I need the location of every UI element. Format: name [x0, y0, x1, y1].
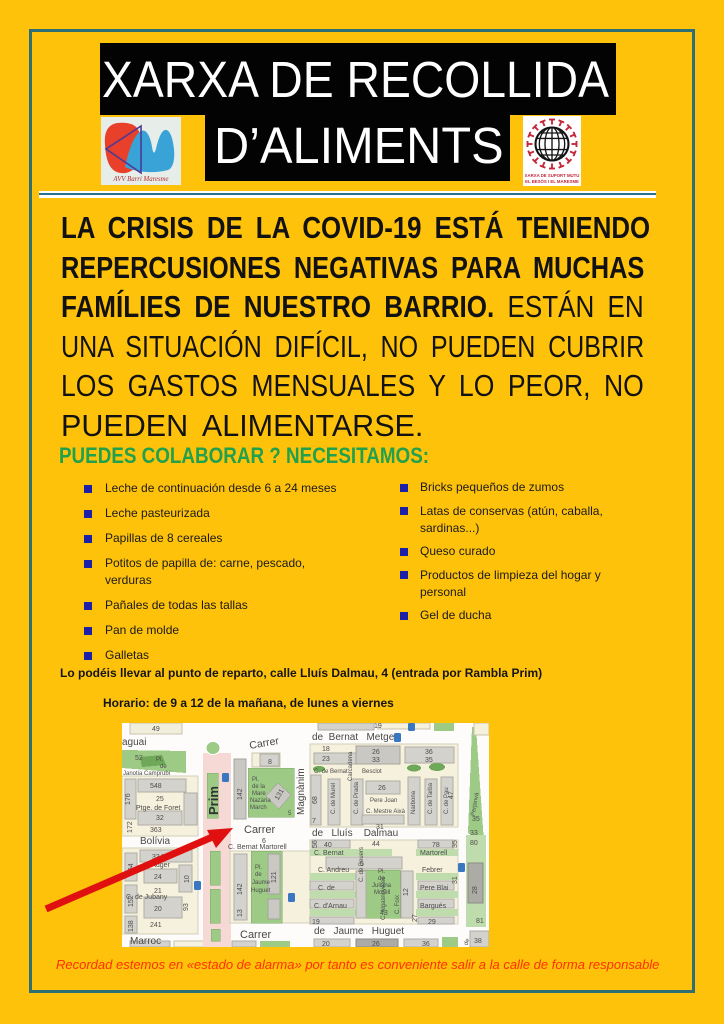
svg-text:18: 18 [322, 746, 330, 753]
svg-text:23: 23 [322, 756, 330, 763]
svg-text:C. Bernat: C. Bernat [314, 850, 344, 857]
svg-text:28: 28 [472, 886, 479, 894]
svg-text:19: 19 [374, 723, 382, 730]
svg-text:31: 31 [452, 876, 459, 884]
svg-text:19: 19 [312, 919, 320, 926]
svg-text:43: 43 [380, 910, 388, 917]
svg-text:C. Mestre Aixà: C. Mestre Aixà [366, 809, 406, 815]
svg-text:Pl.: Pl. [252, 777, 259, 783]
svg-text:12: 12 [403, 888, 410, 896]
svg-text:Mare: Mare [252, 791, 266, 797]
svg-text:Pl.: Pl. [378, 869, 385, 875]
svg-text:Pl.: Pl. [156, 757, 163, 763]
svg-text:Carcadena: Carcadena [348, 751, 354, 781]
svg-text:de Lluís Dalmau: de Lluís Dalmau [312, 828, 398, 839]
svg-text:Narbona: Narbona [411, 790, 417, 814]
svg-text:C. de Prada: C. de Prada [354, 781, 360, 814]
svg-text:26: 26 [378, 785, 386, 792]
svg-text:Besclot: Besclot [362, 769, 382, 775]
svg-text:C. de Bernat: C. de Bernat [314, 769, 348, 775]
svg-text:Pere Blai: Pere Blai [420, 885, 449, 892]
svg-text:27: 27 [412, 914, 419, 922]
svg-text:121: 121 [271, 871, 278, 883]
svg-text:29: 29 [428, 919, 436, 926]
svg-text:Marroc: Marroc [130, 936, 161, 947]
svg-text:35: 35 [472, 816, 480, 823]
svg-text:26: 26 [372, 749, 380, 756]
svg-text:de Bernat Metge: de Bernat Metge [312, 732, 395, 743]
svg-text:548: 548 [150, 783, 162, 790]
svg-text:C. d'Arnau: C. d'Arnau [314, 903, 347, 910]
svg-text:26: 26 [372, 941, 380, 947]
svg-text:78: 78 [432, 842, 440, 849]
svg-text:68: 68 [312, 796, 319, 804]
svg-text:33: 33 [470, 830, 478, 837]
svg-text:33: 33 [372, 757, 380, 764]
svg-text:Bargués: Bargués [420, 903, 447, 910]
svg-text:aguai: aguai [122, 737, 146, 748]
svg-text:56: 56 [312, 840, 319, 848]
svg-text:Carrer: Carrer [240, 929, 272, 941]
svg-text:de: de [160, 764, 167, 770]
svg-text:20: 20 [322, 941, 330, 947]
svg-text:7: 7 [312, 818, 316, 825]
svg-text:C. Andreu: C. Andreu [318, 867, 349, 874]
svg-text:Janotia Camprubi: Janotia Camprubi [123, 771, 170, 777]
svg-text:142: 142 [237, 788, 244, 800]
svg-text:C. Foix: C. Foix [395, 895, 401, 914]
svg-text:81: 81 [476, 918, 484, 925]
svg-text:36: 36 [425, 749, 433, 756]
svg-text:40: 40 [324, 842, 332, 849]
svg-text:de Jaume Huguet: de Jaume Huguet [314, 926, 404, 937]
svg-text:47: 47 [448, 791, 455, 799]
svg-text:de la: de la [252, 784, 266, 790]
svg-text:35: 35 [425, 757, 433, 764]
svg-text:80: 80 [470, 840, 478, 847]
svg-text:C. de Beuers: C. de Beuers [359, 847, 365, 882]
svg-text:44: 44 [372, 841, 380, 848]
svg-text:Magnànim: Magnànim [296, 768, 307, 815]
svg-text:C. de: C. de [318, 885, 335, 892]
svg-text:EL BESÒS I EL MARESME: EL BESÒS I EL MARESME [525, 179, 579, 184]
svg-text:35: 35 [452, 840, 459, 848]
svg-text:52: 52 [135, 755, 143, 762]
svg-text:8: 8 [268, 759, 272, 766]
svg-text:C. de Tarba: C. de Tarba [428, 782, 434, 814]
svg-text:36: 36 [422, 941, 430, 947]
svg-text:XARXA DE SUPORT MUTU: XARXA DE SUPORT MUTU [525, 173, 580, 178]
svg-text:AVV Barri Maresme: AVV Barri Maresme [112, 176, 168, 183]
svg-text:49: 49 [152, 726, 160, 733]
svg-text:Febrer: Febrer [422, 867, 443, 874]
svg-text:Pere Joan: Pere Joan [370, 798, 397, 804]
svg-text:Martorell: Martorell [420, 850, 448, 857]
svg-text:38: 38 [474, 938, 482, 945]
svg-text:C. de Murel: C. de Murel [331, 783, 337, 814]
